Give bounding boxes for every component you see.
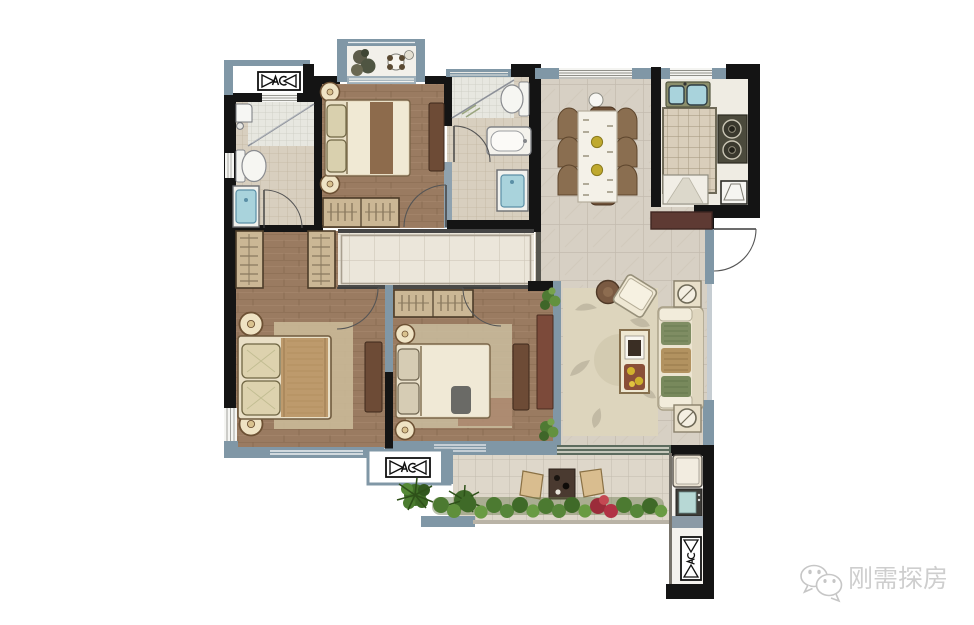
svg-text:刚需探房: 刚需探房 bbox=[848, 565, 948, 593]
